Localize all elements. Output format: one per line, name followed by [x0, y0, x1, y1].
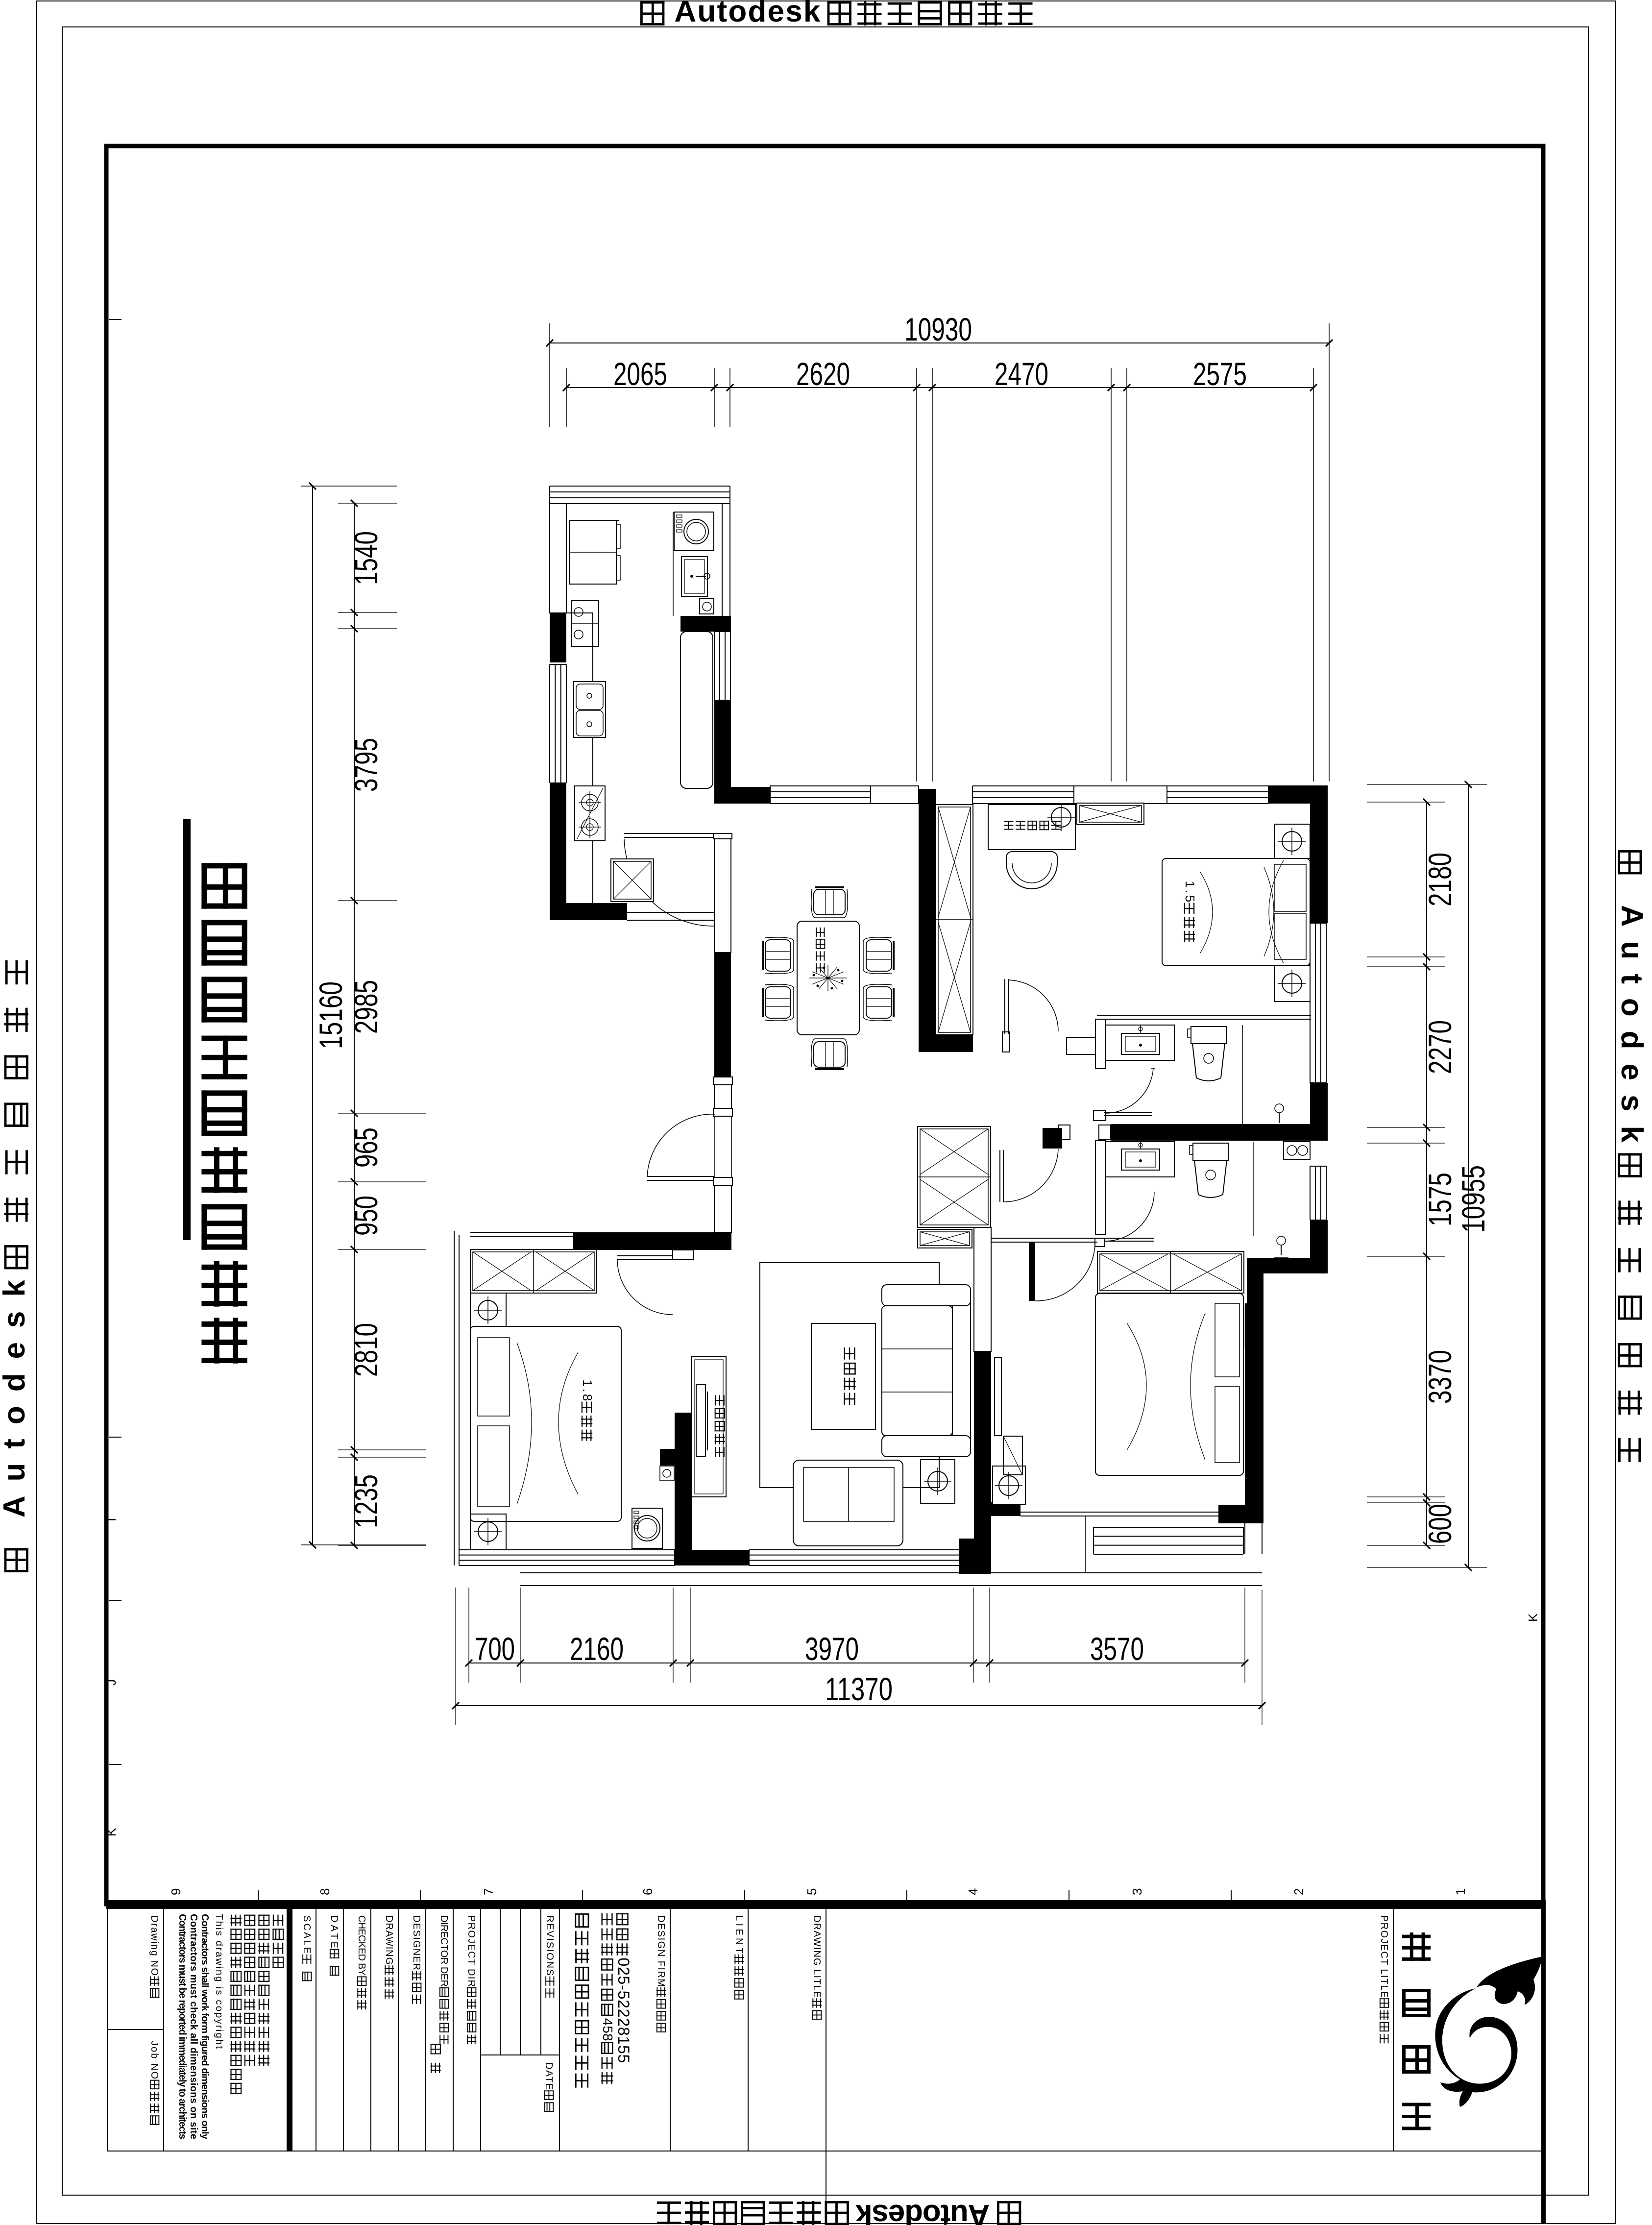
svg-text:2575: 2575 — [1193, 356, 1247, 392]
svg-text:6: 6 — [640, 1888, 655, 1895]
svg-text:2: 2 — [1291, 1888, 1306, 1895]
svg-text:DESIGNER: DESIGNER — [411, 1915, 422, 1970]
svg-text:7: 7 — [481, 1888, 496, 1895]
svg-text:SCALE: SCALE — [301, 1915, 312, 1954]
svg-text:3795: 3795 — [348, 738, 384, 792]
svg-text:11370: 11370 — [825, 1671, 893, 1707]
svg-text:3570: 3570 — [1090, 1631, 1144, 1667]
svg-text:DIRECTOR DER: DIRECTOR DER — [438, 1915, 449, 1987]
svg-text:DRAWING LITLE: DRAWING LITLE — [811, 1915, 822, 1998]
svg-text:700: 700 — [475, 1631, 515, 1667]
svg-text:DESIGN FIRM: DESIGN FIRM — [656, 1915, 666, 1987]
svg-text:10955: 10955 — [1455, 1165, 1491, 1233]
svg-text:K: K — [104, 1828, 119, 1836]
svg-text:1.5: 1.5 — [1183, 880, 1197, 902]
svg-text:Contractors shall work form fi: Contractors shall work form figured dime… — [199, 1914, 210, 2140]
svg-text:2270: 2270 — [1422, 1020, 1458, 1074]
svg-text:Autodesk: Autodesk — [674, 0, 821, 28]
svg-text:3970: 3970 — [805, 1631, 859, 1667]
svg-text:025-52228155: 025-52228155 — [615, 1957, 632, 2063]
svg-text:458: 458 — [600, 2018, 615, 2041]
svg-text:K: K — [1526, 1613, 1540, 1622]
svg-text:9: 9 — [169, 1888, 183, 1895]
svg-text:2810: 2810 — [348, 1323, 384, 1377]
svg-text:600: 600 — [1422, 1504, 1458, 1544]
svg-text:2470: 2470 — [995, 356, 1048, 392]
svg-text:1: 1 — [1453, 1888, 1468, 1895]
svg-text:2985: 2985 — [348, 980, 384, 1034]
svg-text:4: 4 — [966, 1888, 980, 1895]
svg-text:1.8: 1.8 — [580, 1379, 595, 1401]
svg-text:1575: 1575 — [1422, 1173, 1458, 1226]
svg-text:3370: 3370 — [1422, 1350, 1458, 1404]
svg-text:CHECKED BY: CHECKED BY — [356, 1915, 367, 1976]
svg-text:2180: 2180 — [1422, 853, 1458, 906]
svg-text:I: I — [104, 1518, 119, 1521]
svg-text:REVISIONS: REVISIONS — [544, 1915, 555, 1976]
svg-text:1235: 1235 — [348, 1474, 384, 1528]
svg-text:Job NO: Job NO — [149, 2041, 160, 2079]
svg-text:Contractors must check all dim: Contractors must check all dimensions on… — [188, 1914, 199, 2139]
svg-text:5: 5 — [804, 1888, 819, 1895]
svg-text:8: 8 — [317, 1888, 332, 1895]
svg-text:3: 3 — [1130, 1888, 1144, 1895]
svg-text:Contractors must be reported i: Contractors must be reported immediately… — [177, 1914, 188, 2139]
svg-text:PROJECT DIR: PROJECT DIR — [466, 1915, 477, 1987]
svg-text:10930: 10930 — [904, 311, 972, 347]
svg-text:PROJECT LITLE: PROJECT LITLE — [1379, 1915, 1389, 1998]
svg-text:965: 965 — [348, 1127, 384, 1168]
svg-text:DRAWING: DRAWING — [384, 1915, 394, 1965]
svg-text:Drawing NO: Drawing NO — [149, 1915, 160, 1976]
svg-text:2620: 2620 — [796, 356, 850, 392]
svg-text:J: J — [104, 1679, 119, 1686]
svg-text:2065: 2065 — [613, 356, 667, 392]
svg-text:2160: 2160 — [570, 1631, 624, 1667]
svg-text:15160: 15160 — [313, 981, 349, 1049]
svg-text:Autodesk: Autodesk — [855, 2198, 990, 2225]
svg-text:1540: 1540 — [348, 531, 384, 585]
svg-text:950: 950 — [348, 1196, 384, 1236]
